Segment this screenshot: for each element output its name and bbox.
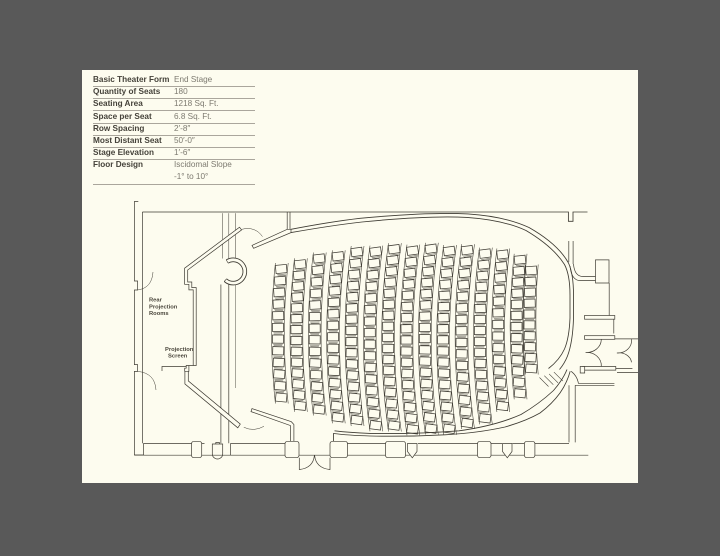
svg-text:Projection: Projection bbox=[165, 347, 194, 353]
svg-text:Screen: Screen bbox=[168, 354, 188, 360]
svg-text:Rooms: Rooms bbox=[149, 311, 169, 317]
svg-text:Projection: Projection bbox=[149, 304, 178, 310]
svg-text:Rear: Rear bbox=[149, 298, 163, 304]
